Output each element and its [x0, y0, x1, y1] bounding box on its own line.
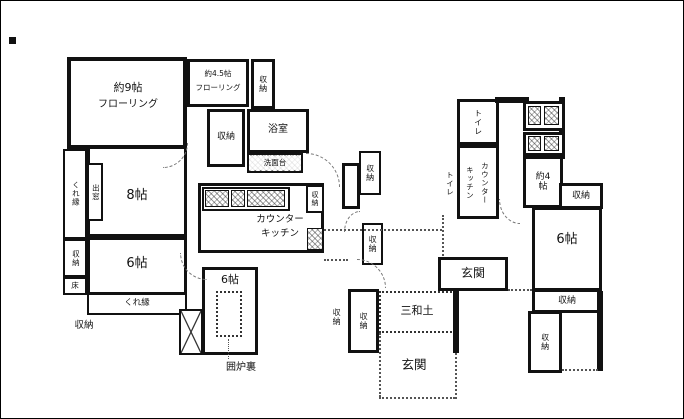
closet-corridor-e-label: 収納: [353, 295, 374, 347]
room-6jo-right-label: 6帖: [547, 229, 587, 251]
closet-right-c-label: 収納: [536, 319, 554, 365]
fixture-sq-4: [544, 136, 559, 151]
irori-marker: [216, 291, 242, 337]
veranda-bottom-label: くれ縁: [101, 296, 173, 312]
corridor-dotted-line-2: [324, 259, 348, 261]
floor-alcove-label: 床: [64, 280, 86, 292]
cross-lines-icon: [181, 311, 201, 353]
room-4jo-label: 約4帖: [532, 164, 554, 200]
wall-segment-entrance: [453, 287, 459, 353]
fixture-sq-1: [528, 106, 541, 125]
corner-mark: [9, 37, 16, 44]
door-arc-right-kitchen: [499, 199, 520, 224]
bath-room-label: 浴室: [249, 121, 307, 139]
room-6jo-center-label: 6帖: [212, 271, 248, 289]
closet-left-label: 収納: [66, 243, 84, 273]
closet-mid-label: 収納: [209, 129, 243, 145]
entrance-upper-label: 玄関: [441, 263, 505, 285]
counter-kitchen-label-1: カウンター: [239, 213, 321, 227]
room-8jo-label: 8帖: [115, 185, 159, 207]
kitchen-right-label-1: カウンター: [477, 151, 491, 215]
kitchen-right-label-2: キッチン: [462, 151, 476, 215]
counter-unit-2: [231, 190, 245, 207]
tataki-label: 三和土: [381, 301, 453, 321]
door-arc-bath: [306, 153, 340, 187]
corridor-dotted-line-1: [324, 229, 442, 231]
room-flooring-9-type: フローリング: [73, 97, 183, 113]
entrance-dotted-left: [379, 333, 381, 397]
hatch-cross-box: [179, 309, 203, 355]
entrance-dotted-right: [455, 353, 457, 399]
closet-kitchen-right-label: 収納: [308, 187, 322, 211]
entrance-dotted-bottom: [379, 397, 455, 399]
corridor-dotted-line-3: [442, 215, 444, 259]
closet-top-label: 収納: [254, 63, 272, 105]
room-flooring-9-size: 約9帖: [73, 79, 183, 97]
door-arc-corridor: [344, 211, 360, 232]
fixture-sq-2: [544, 106, 559, 125]
closet-corridor-a: [342, 163, 360, 209]
floor-plan: 約9帖 フローリング 約4.5帖 フローリング 収納 収納 浴室 洗面台 床の間…: [0, 0, 684, 419]
toilet-room-label: トイレ: [469, 103, 487, 141]
fixture-sq-3: [528, 136, 541, 151]
counter-unit-1: [205, 190, 229, 207]
closet-corridor-d-label: 収納: [328, 295, 345, 339]
washstand-label: 洗面台: [249, 156, 301, 170]
room-flooring-45-size: 約4.5帖: [189, 67, 247, 81]
counter-unit-3: [247, 190, 285, 207]
entrance-lower-label: 玄関: [383, 355, 445, 375]
closet-right-b-label: 収納: [535, 293, 599, 309]
veranda-left-label: くれ縁: [66, 157, 84, 231]
closet-corridor-b-label: 収納: [362, 155, 378, 191]
wall-segment-right-lower: [597, 291, 603, 371]
toilet-corridor-label: トイレ: [442, 159, 456, 209]
bay-window-label: 出窓: [89, 167, 101, 217]
closet-right-a-label: 収納: [561, 188, 601, 204]
room-flooring-45-type: フローリング: [189, 81, 247, 95]
kitchen-fixture-box: [307, 228, 323, 250]
irori-label: 囲炉裏: [213, 361, 269, 375]
room-6jo-left-label: 6帖: [115, 253, 159, 275]
right-dotted-bottom: [562, 369, 598, 371]
irori-leader-line: [228, 339, 229, 359]
closet-corridor-c-label: 収納: [365, 227, 380, 261]
closet-outside-label: 収納: [61, 319, 107, 333]
entrance-dotted-step: [508, 289, 532, 291]
